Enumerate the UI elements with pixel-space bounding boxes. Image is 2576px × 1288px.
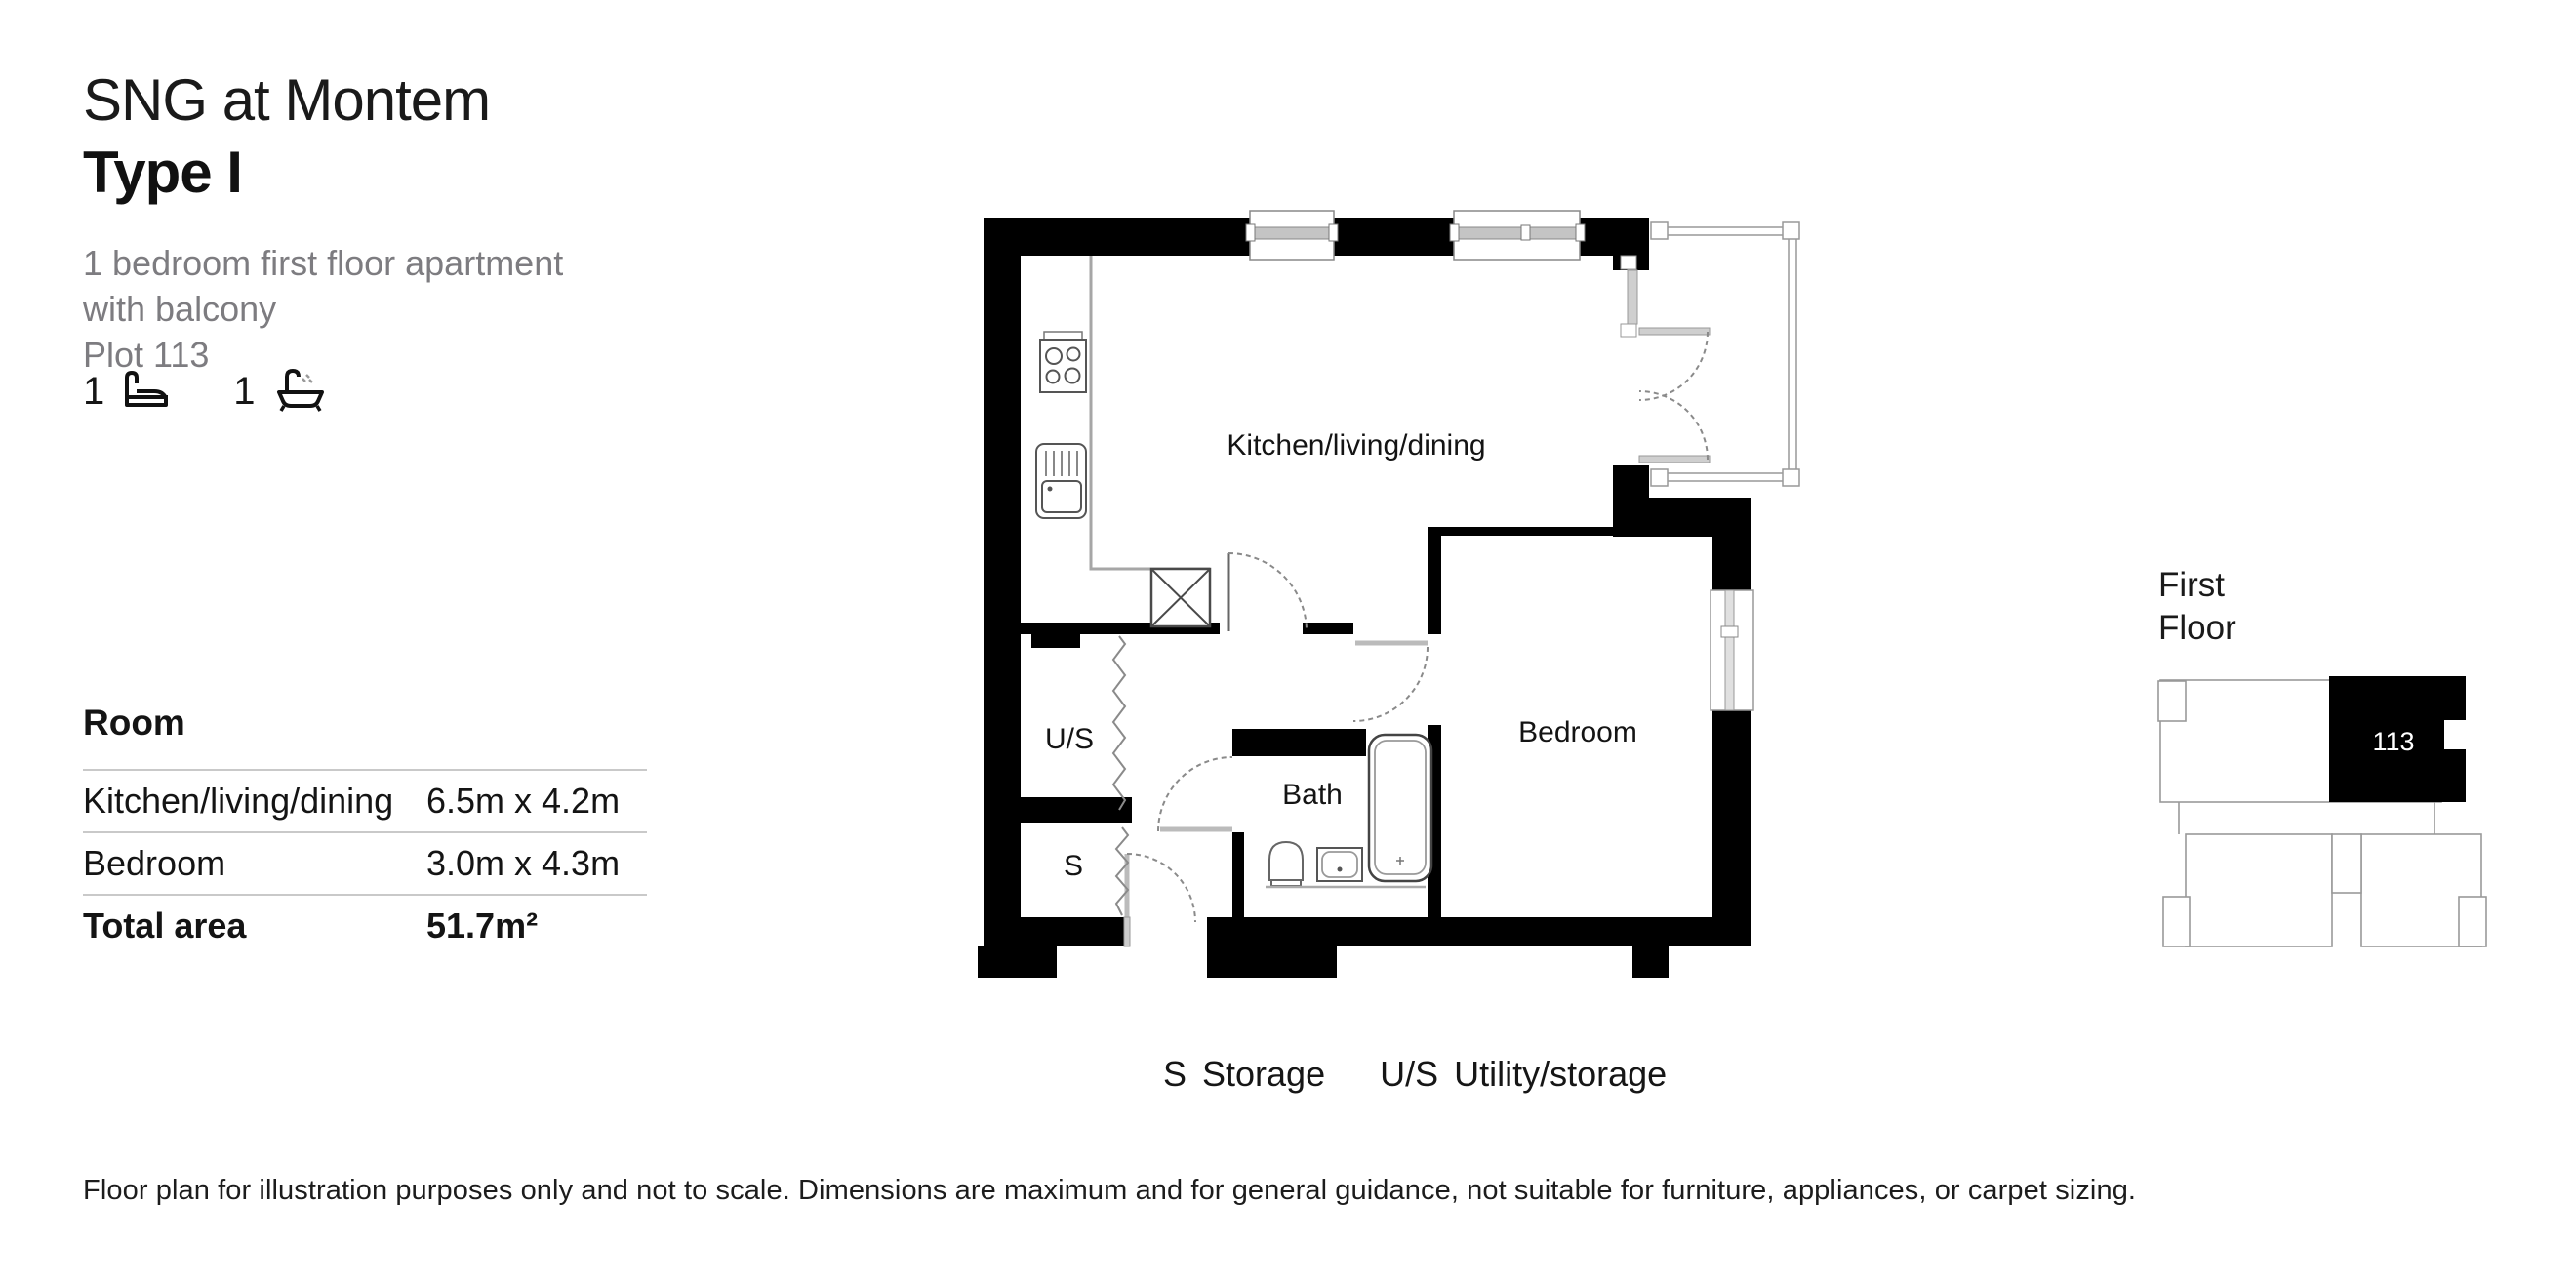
highlighted-unit: 113 <box>2329 676 2466 802</box>
room-name: Kitchen/living/dining <box>83 781 426 822</box>
french-door-arcs <box>1639 332 1708 460</box>
entry-threshold <box>1124 917 1130 946</box>
bedroom-window <box>1711 590 1753 710</box>
description-line-1: 1 bedroom first floor apartment <box>83 240 563 286</box>
kitchen-counter-line <box>1091 256 1210 569</box>
kitchen-unit-icon <box>1151 569 1210 626</box>
legend-storage-abbr: S <box>1163 1054 1187 1095</box>
description-line-2: with balcony <box>83 286 563 332</box>
room-dimensions: 6.5m x 4.2m <box>426 781 620 822</box>
window-top-1 <box>1246 211 1338 260</box>
table-header-room: Room <box>83 695 647 769</box>
bed-bath-summary: 1 1 <box>83 367 328 417</box>
bedroom-label: Bedroom <box>1518 716 1637 748</box>
minimap-floor-title: First Floor <box>2158 564 2236 650</box>
living-room-door <box>1228 553 1307 631</box>
sink-icon <box>1036 444 1086 518</box>
bed-icon <box>122 368 173 416</box>
table-row-total: Total area 51.7m² <box>83 894 647 956</box>
utility-bifold-door <box>1113 636 1125 810</box>
table-row-bedroom: Bedroom 3.0m x 4.3m <box>83 831 647 894</box>
room-dimensions-table: Room Kitchen/living/dining 6.5m x 4.2m B… <box>83 695 647 956</box>
plan-legend: S Storage U/S Utility/storage <box>1163 1054 1667 1095</box>
minimap-floor-line1: First <box>2158 564 2236 607</box>
plan-type-title: Type I <box>83 139 242 206</box>
room-dimensions: 3.0m x 4.3m <box>426 843 620 884</box>
bath-icon <box>273 367 328 417</box>
window-top-2 <box>1450 211 1585 260</box>
balcony-glazing <box>1621 256 1710 463</box>
apartment-description: 1 bedroom first floor apartment with bal… <box>83 240 563 378</box>
bath-label: Bath <box>1282 779 1343 811</box>
development-title: SNG at Montem <box>83 66 490 134</box>
bed-count: 1 <box>83 370 104 414</box>
legend-utility-abbr: U/S <box>1380 1054 1438 1095</box>
hob-icon <box>1040 332 1086 392</box>
total-area-value: 51.7m² <box>426 906 538 946</box>
bedroom-door <box>1353 643 1428 721</box>
toilet-icon <box>1269 842 1303 886</box>
bath-door <box>1158 757 1232 831</box>
balcony <box>1651 222 1799 486</box>
disclaimer-text: Floor plan for illustration purposes onl… <box>83 1175 2136 1207</box>
utility-storage-label: U/S <box>1045 723 1094 755</box>
legend-utility-label: Utility/storage <box>1454 1054 1667 1095</box>
storage-label: S <box>1064 850 1083 882</box>
room-name: Bedroom <box>83 843 426 884</box>
site-locator-minimap: 113 <box>2152 664 2493 956</box>
kitchen-living-dining-label: Kitchen/living/dining <box>1227 429 1485 462</box>
floor-plan-drawing: Kitchen/living/dining Bedroom Bath U/S S <box>976 185 1805 995</box>
unit-number-label: 113 <box>2372 727 2414 756</box>
minimap-floor-line2: Floor <box>2158 607 2236 650</box>
bath-count: 1 <box>233 370 255 414</box>
entry-door <box>1127 854 1195 922</box>
bathtub-icon <box>1369 735 1431 881</box>
legend-storage-label: Storage <box>1202 1054 1325 1095</box>
total-area-label: Total area <box>83 906 426 946</box>
basin-icon <box>1317 848 1362 881</box>
table-row-kitchen: Kitchen/living/dining 6.5m x 4.2m <box>83 769 647 831</box>
